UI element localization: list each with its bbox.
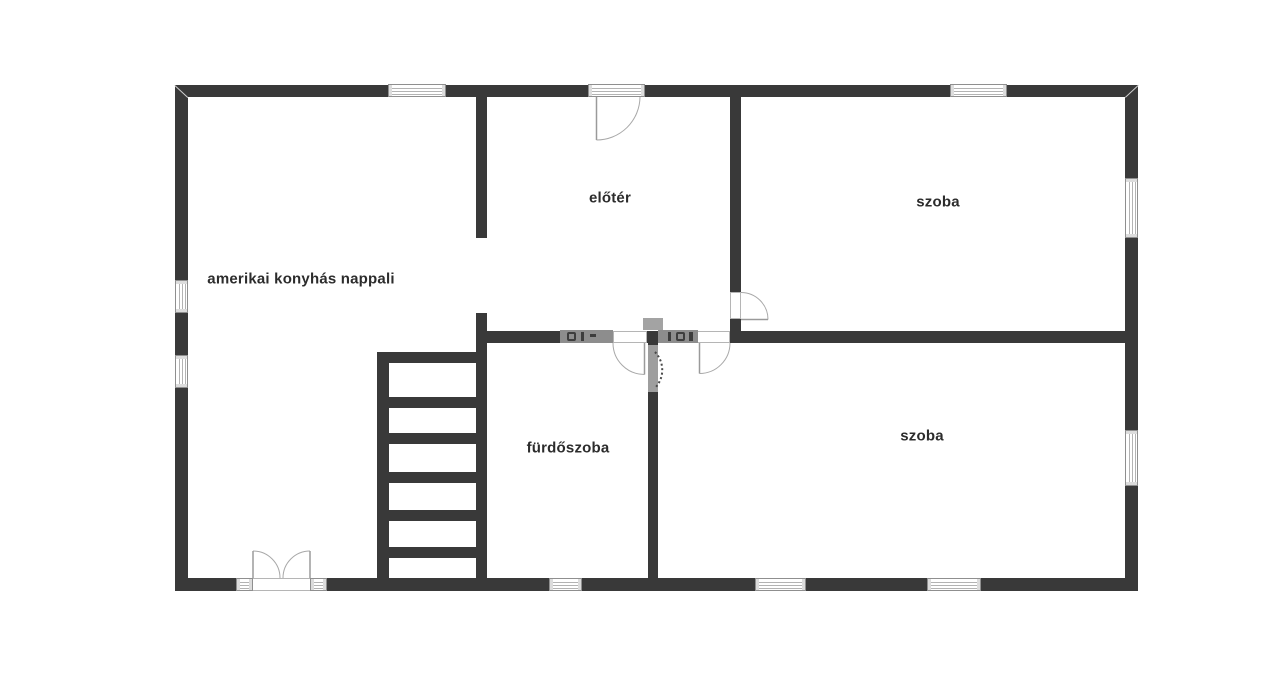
entry-door-glazing: [588, 84, 645, 97]
french-door-frame-right: [310, 578, 327, 591]
watermark-mark: [689, 332, 693, 341]
inner-wall-livingroom-foyer-upper: [476, 97, 487, 238]
room1-door-opening: [730, 292, 741, 319]
watermark-mark: [668, 332, 671, 341]
room-label-foyer: előtér: [589, 190, 631, 207]
window-right-room2: [1125, 430, 1138, 486]
watermark-mark: [590, 334, 596, 337]
room-label-room-1: szoba: [916, 194, 960, 211]
room-label-bathroom: fürdőszoba: [527, 440, 610, 457]
stair-tread: [377, 472, 487, 483]
window-bottom-room2-left: [755, 578, 806, 591]
outer-wall-left: [175, 85, 188, 591]
watermark-mark: [676, 332, 685, 341]
stair-tread: [377, 510, 487, 521]
outer-wall-right: [1125, 85, 1138, 591]
window-top-right: [950, 84, 1007, 97]
window-top-left: [388, 84, 446, 97]
stair-rail: [377, 352, 389, 578]
room2-door-swing-arc: [700, 343, 731, 374]
room-label-room-2: szoba: [900, 428, 944, 445]
bathroom-door-opening: [613, 331, 647, 343]
room-label-living-room: amerikai konyhás nappali: [207, 271, 394, 288]
french-door-frame-left: [236, 578, 253, 591]
bathroom-door-swing-arc: [613, 343, 645, 375]
stair-tread: [377, 352, 487, 363]
french-door-left-swing-arc: [253, 551, 280, 578]
stair-tread: [377, 433, 487, 444]
floor-plan: amerikai konyhás nappali előtér szoba sz…: [0, 0, 1280, 681]
french-door-right-swing-arc: [283, 551, 310, 578]
stair-tread: [377, 397, 487, 408]
entry-door-swing-arc: [597, 97, 641, 140]
watermark-mark: [567, 332, 576, 341]
watermark-mark: [581, 332, 584, 341]
inner-wall-foyer-room1: [730, 97, 741, 292]
watermark-fragment: [643, 318, 663, 330]
window-left-lower: [175, 355, 188, 388]
room1-door-swing-arc: [741, 293, 768, 320]
room2-door-opening: [697, 331, 730, 343]
stair-tread: [377, 547, 487, 558]
watermark-fragment: [648, 345, 658, 392]
window-left-upper: [175, 280, 188, 313]
window-bottom-bathroom: [549, 578, 582, 591]
window-right-room1: [1125, 178, 1138, 238]
window-bottom-room2-right: [927, 578, 981, 591]
inner-wall-horizontal-seg3: [730, 331, 1125, 343]
